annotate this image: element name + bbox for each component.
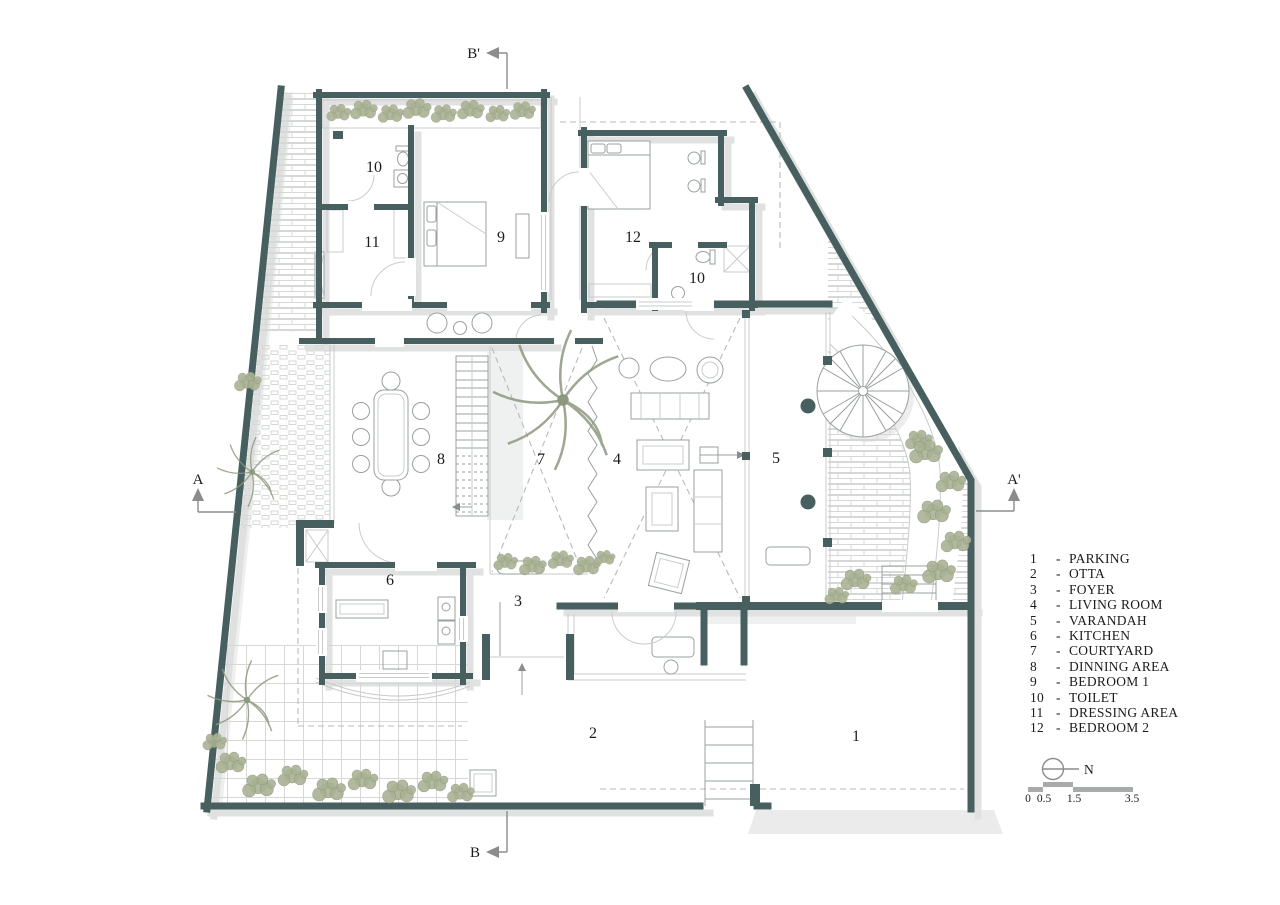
room-label-toilet-2: 10 (689, 270, 705, 287)
legend-separator: - (1056, 643, 1069, 659)
louver-ledge (589, 284, 651, 297)
scale-tick-0: 0 (1025, 793, 1031, 805)
legend-label: COURTYARD (1069, 643, 1178, 659)
sitout-chairs (427, 313, 492, 335)
section-arrow-icon (192, 488, 204, 501)
legend-label: KITCHEN (1069, 628, 1178, 644)
dining-table (353, 372, 430, 496)
legend-label: OTTA (1069, 566, 1178, 582)
varandah-column (801, 495, 816, 510)
legend-number: 5 (1030, 613, 1056, 629)
room-label-dressing-area: 11 (364, 234, 379, 251)
room-label-otta: 2 (589, 725, 597, 742)
folding-door (588, 346, 597, 574)
otta-porch (568, 614, 753, 806)
legend-separator: - (1056, 566, 1069, 582)
legend-item: 9-BEDROOM 1 (1030, 674, 1178, 689)
legend-label: PARKING (1069, 551, 1178, 567)
legend-label: LIVING ROOM (1069, 597, 1178, 613)
varandah-bench (766, 547, 810, 565)
room-label-courtyard: 7 (537, 451, 545, 468)
legend-label: FOYER (1069, 582, 1178, 598)
legend-item: 8-DINNING AREA (1030, 659, 1178, 674)
room-label-foyer: 3 (514, 593, 522, 610)
toilet-2-fixtures (672, 151, 751, 300)
section-label-b-prime: B' (467, 46, 480, 62)
legend-number: 4 (1030, 597, 1056, 613)
legend-label: BEDROOM 2 (1069, 720, 1178, 736)
legend-label: DRESSING AREA (1069, 705, 1178, 721)
legend-number: 7 (1030, 643, 1056, 659)
section-arrow-icon (1008, 488, 1020, 501)
section-marker-a-prime: A' (976, 472, 1021, 511)
scale-tick-05: 0.5 (1037, 793, 1052, 805)
legend-item: 1-PARKING (1030, 551, 1178, 566)
scale-tick-35: 3.5 (1125, 793, 1140, 805)
legend-number: 9 (1030, 674, 1056, 690)
scale-tick-15: 1.5 (1067, 793, 1082, 805)
legend-label: DINNING AREA (1069, 659, 1178, 675)
section-arrow-icon (486, 846, 499, 858)
varandah-column (801, 399, 816, 414)
legend-item: 2-OTTA (1030, 566, 1178, 581)
legend: 1-PARKING 2-OTTA 3-FOYER 4-LIVING ROOM 5… (1030, 551, 1178, 736)
legend-item: 3-FOYER (1030, 582, 1178, 597)
legend-item: 12-BEDROOM 2 (1030, 720, 1178, 735)
legend-separator: - (1056, 582, 1069, 598)
legend-number: 12 (1030, 720, 1056, 736)
section-label-a: A (193, 472, 204, 488)
wardrobe (394, 206, 410, 258)
north-label: N (1084, 762, 1094, 777)
room-label-toilet-1: 10 (366, 159, 382, 176)
foyer-fixtures (490, 561, 564, 657)
room-label-dinning-area: 8 (437, 451, 445, 468)
legend-number: 11 (1030, 705, 1056, 721)
floor-plan-page: 10 11 9 12 10 8 7 4 5 6 3 2 1 B' B A A' (0, 0, 1280, 905)
legend-number: 6 (1030, 628, 1056, 644)
legend-item: 4-LIVING ROOM (1030, 597, 1178, 612)
room-label-varandah: 5 (772, 450, 780, 467)
legend-separator: - (1056, 613, 1069, 629)
room-label-living-room: 4 (613, 451, 621, 468)
floor-plan-drawing: 10 11 9 12 10 8 7 4 5 6 3 2 1 B' B A A' (0, 0, 1280, 905)
room-label-kitchen: 6 (386, 572, 394, 589)
legend-item: 10-TOILET (1030, 690, 1178, 705)
legend-separator: - (1056, 628, 1069, 644)
legend-item: 11-DRESSING AREA (1030, 705, 1178, 720)
legend-separator: - (1056, 551, 1069, 567)
section-marker-b: B (470, 811, 507, 861)
section-marker-b-prime: B' (467, 46, 507, 89)
section-arrow-icon (486, 47, 499, 59)
legend-item: 7-COURTYARD (1030, 643, 1178, 658)
legend-separator: - (1056, 659, 1069, 675)
room-label-bedroom-1: 9 (497, 229, 505, 246)
room-label-bedroom-2: 12 (625, 229, 641, 246)
legend-label: TOILET (1069, 690, 1178, 706)
legend-number: 1 (1030, 551, 1056, 567)
legend-number: 8 (1030, 659, 1056, 675)
legend-label: VARANDAH (1069, 613, 1178, 629)
legend-separator: - (1056, 597, 1069, 613)
staircase (452, 356, 488, 516)
scale-bar: 0 0.5 1.5 3.5 (1025, 782, 1139, 805)
legend-number: 2 (1030, 566, 1056, 582)
living-furniture (619, 357, 723, 594)
room-label-parking: 1 (852, 728, 860, 745)
bed-bedroom-1 (424, 202, 529, 266)
bed-bedroom-2 (588, 141, 650, 209)
legend-separator: - (1056, 690, 1069, 706)
section-label-a-prime: A' (1007, 472, 1021, 488)
north-arrow: N (1043, 759, 1095, 780)
section-label-b: B (470, 845, 480, 861)
legend-separator: - (1056, 705, 1069, 721)
legend-separator: - (1056, 674, 1069, 690)
legend-number: 10 (1030, 690, 1056, 706)
legend-item: 6-KITCHEN (1030, 628, 1178, 643)
legend-separator: - (1056, 720, 1069, 736)
legend-label: BEDROOM 1 (1069, 674, 1178, 690)
legend-number: 3 (1030, 582, 1056, 598)
legend-item: 5-VARANDAH (1030, 613, 1178, 628)
